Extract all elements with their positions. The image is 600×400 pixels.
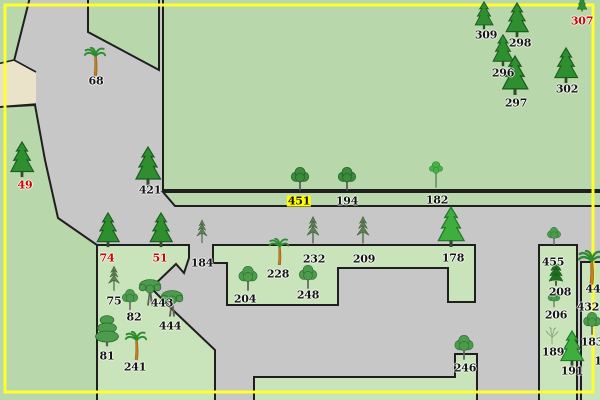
tree-label-248: 248: [297, 290, 319, 301]
tree-label-208: 208: [549, 287, 571, 298]
tree-label-232: 232: [303, 254, 325, 265]
tree-label-184: 184: [191, 258, 213, 269]
tree-label-44: 44: [586, 284, 600, 295]
tree-label-68: 68: [89, 76, 104, 87]
tree-label-51: 51: [153, 253, 168, 264]
tree-label-246: 246: [454, 363, 476, 374]
tree-label-307: 307: [571, 16, 593, 27]
tree-label-182: 182: [426, 195, 448, 206]
map-canvas[interactable]: 6849421307309298296297302451194182745118…: [0, 0, 600, 400]
tree-label-228: 228: [267, 269, 289, 280]
tree-label-189: 189: [542, 347, 564, 358]
tree-label-241: 241: [124, 362, 146, 373]
tree-label-296: 296: [492, 68, 514, 79]
tree-label-421: 421: [139, 185, 161, 196]
tree-label-49: 49: [18, 180, 33, 191]
tree-label-1: 1: [594, 356, 600, 367]
tree-label-183: 183: [581, 337, 600, 348]
tree-label-204: 204: [234, 294, 256, 305]
tree-label-74: 74: [100, 253, 115, 264]
tree-label-82: 82: [127, 312, 142, 323]
tree-label-206: 206: [545, 310, 567, 321]
tree-label-444: 444: [159, 321, 181, 332]
tree-label-178: 178: [442, 253, 464, 264]
tree-labels-layer: 6849421307309298296297302451194182745118…: [0, 0, 600, 400]
tree-label-443: 443: [151, 298, 173, 309]
tree-label-302: 302: [556, 84, 578, 95]
tree-label-451: 451: [287, 196, 311, 207]
tree-label-191: 191: [561, 366, 583, 377]
tree-label-194: 194: [336, 196, 358, 207]
tree-label-81: 81: [100, 351, 115, 362]
tree-label-432: 432: [577, 302, 599, 313]
tree-label-309: 309: [475, 30, 497, 41]
tree-label-297: 297: [505, 98, 527, 109]
tree-label-209: 209: [353, 254, 375, 265]
tree-label-455: 455: [542, 257, 564, 268]
tree-label-75: 75: [107, 296, 122, 307]
tree-label-298: 298: [509, 38, 531, 49]
